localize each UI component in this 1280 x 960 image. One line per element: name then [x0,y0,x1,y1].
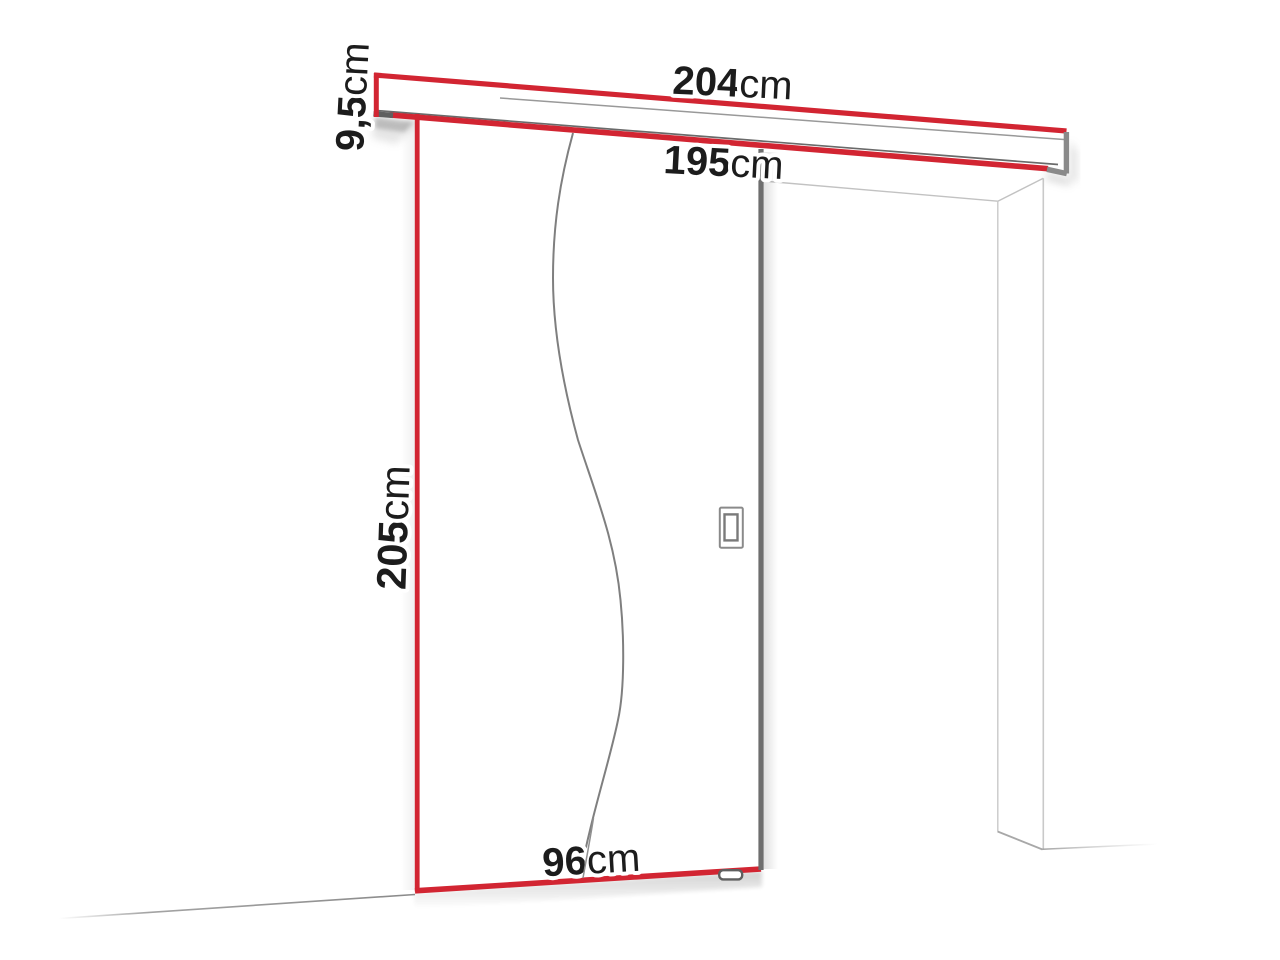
svg-text:9,5cm: 9,5cm [328,41,378,152]
svg-text:205cm: 205cm [367,464,418,590]
svg-text:195cm: 195cm [663,138,785,188]
svg-text:96cm: 96cm [541,836,641,886]
svg-text:204cm: 204cm [672,59,794,109]
